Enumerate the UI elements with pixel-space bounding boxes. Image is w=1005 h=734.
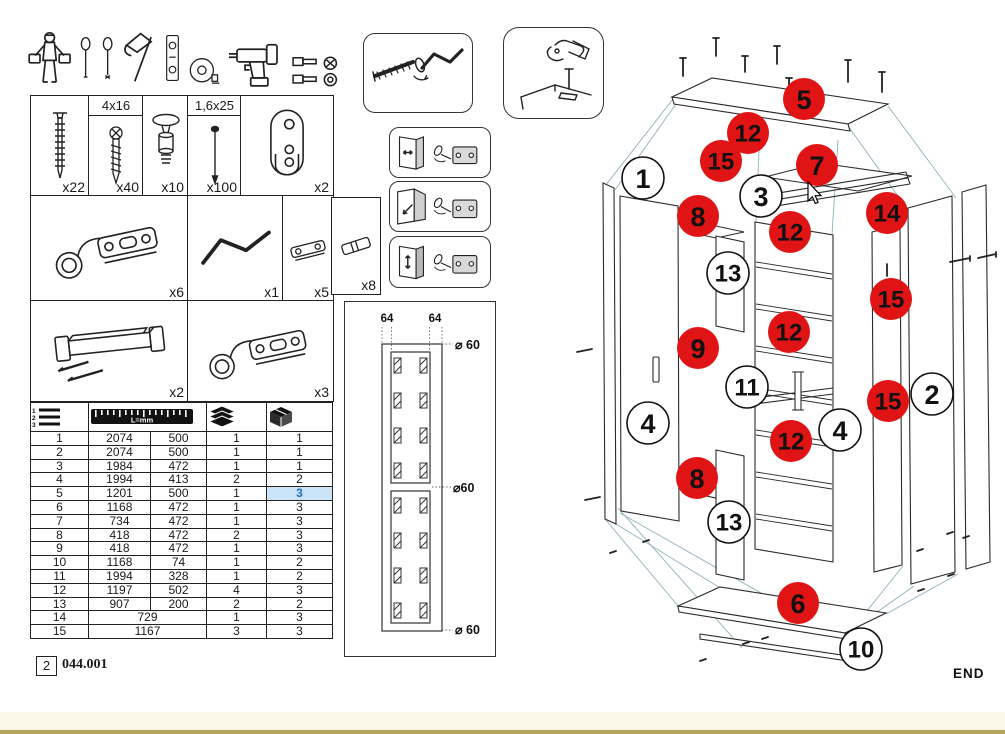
svg-text:9: 9 xyxy=(690,334,705,364)
dim-64-left: 64 xyxy=(381,313,394,325)
svg-text:11: 11 xyxy=(734,375,759,402)
parts-table-cell: 1 xyxy=(31,432,89,446)
svg-text:15: 15 xyxy=(875,389,902,416)
parts-table-cell: 472 xyxy=(151,500,207,514)
length-ruler-icon: L=mm xyxy=(89,403,207,432)
parts-table-cell: 328 xyxy=(151,569,207,583)
callout-12-red: 12 xyxy=(768,311,810,353)
parts-table-row: 3198447211 xyxy=(31,459,333,473)
hinge-icon xyxy=(31,196,188,301)
callout-13-white: 13 xyxy=(707,252,749,294)
svg-text:4: 4 xyxy=(832,416,847,446)
exploded-diagram-svg: 51215714812151291512861313114421310 END xyxy=(575,10,1005,700)
parts-table-cell: 500 xyxy=(151,432,207,446)
parts-table-cell: 3 xyxy=(267,542,333,556)
svg-text:15: 15 xyxy=(708,149,735,176)
parts-table-row: 1390720022 xyxy=(31,597,333,611)
callout-8-red: 8 xyxy=(676,457,718,499)
parts-table-cell: 1 xyxy=(207,500,267,514)
parts-table-cell: 74 xyxy=(151,556,207,570)
parts-table-cell: 5 xyxy=(31,487,89,501)
hardware-cell-hinge2: x3 xyxy=(187,300,334,402)
parts-table-cell: 1197 xyxy=(89,583,151,597)
parts-table-cell: 4 xyxy=(207,583,267,597)
doc-code: 044.001 xyxy=(62,657,108,673)
parts-table-cell: 12 xyxy=(31,583,89,597)
parts-table-cell: 472 xyxy=(151,528,207,542)
parts-table-cell: 418 xyxy=(89,542,151,556)
svg-text:3: 3 xyxy=(32,422,36,428)
drill-holes xyxy=(394,358,427,618)
drill-hole xyxy=(394,358,401,373)
parts-table-cell: 8 xyxy=(31,528,89,542)
parts-table-cell: 1168 xyxy=(89,556,151,570)
svg-text:12: 12 xyxy=(776,320,803,347)
drill-template-box: 64 64 ⌀ 60 ⌀60 ⌀ 60 xyxy=(344,301,496,657)
parts-table-cell: 1994 xyxy=(89,569,151,583)
parts-table-cell: 2 xyxy=(267,597,333,611)
parts-table-cell: 3 xyxy=(267,583,333,597)
callout-8-red: 8 xyxy=(677,195,719,237)
parts-table-cell: 6 xyxy=(31,500,89,514)
svg-text:6: 6 xyxy=(790,589,805,619)
parts-table-cell: 2 xyxy=(31,445,89,459)
callout-15-red: 15 xyxy=(867,380,909,422)
drill-hole xyxy=(394,498,401,513)
parts-table-cell: 472 xyxy=(151,542,207,556)
callout-9-red: 9 xyxy=(677,327,719,369)
qty-label: x40 xyxy=(116,179,139,195)
parts-table-row: 1207450011 xyxy=(31,432,333,446)
callout-4-white: 4 xyxy=(819,409,861,451)
tools-row xyxy=(28,12,340,94)
dia-60-mid: ⌀60 xyxy=(453,481,474,495)
crank-screw-instruction-box xyxy=(363,33,473,113)
callout-10-white: 10 xyxy=(840,628,882,670)
parts-table-cell: 472 xyxy=(151,514,207,528)
parts-table-cell: 500 xyxy=(151,487,207,501)
door-adjust-depth-icon xyxy=(394,186,486,227)
parts-table-row: 1011687412 xyxy=(31,556,333,570)
svg-text:2: 2 xyxy=(924,380,939,410)
callout-3-white: 3 xyxy=(740,175,782,217)
parts-table-cell: 3 xyxy=(267,528,333,542)
drill-hole xyxy=(420,358,427,373)
callout-1-white: 1 xyxy=(622,157,664,199)
svg-text:L=mm: L=mm xyxy=(131,416,154,425)
parts-table-body: 1207450011220745001131984472114199441322… xyxy=(31,432,333,639)
parts-table-cell: 500 xyxy=(151,445,207,459)
parts-table-cell: 1994 xyxy=(89,473,151,487)
parts-table-cell: 9 xyxy=(31,542,89,556)
parts-table-cell: 502 xyxy=(151,583,207,597)
qty-label: x100 xyxy=(207,179,237,195)
callout-4-white: 4 xyxy=(627,402,669,444)
callout-11-white: 11 xyxy=(726,366,768,408)
drill-hole xyxy=(394,428,401,443)
parts-table-cell: 1 xyxy=(267,459,333,473)
svg-text:8: 8 xyxy=(689,464,704,494)
drill-hole xyxy=(420,533,427,548)
hammer-icon xyxy=(122,22,157,94)
parts-table-cell: 7 xyxy=(31,514,89,528)
drill-hole xyxy=(394,568,401,583)
qty-label: x5 xyxy=(314,284,329,300)
parts-table-cell: 200 xyxy=(151,597,207,611)
parts-table-row: 2207450011 xyxy=(31,445,333,459)
parts-table-cell: 3 xyxy=(267,487,333,501)
parts-table-cell: 2074 xyxy=(89,445,151,459)
page-number-box: 2 xyxy=(36,656,57,676)
flat-screwdriver-icon xyxy=(79,24,92,94)
parts-table-cell: 3 xyxy=(31,459,89,473)
parts-table-cell: 1 xyxy=(207,514,267,528)
callout-7-red: 7 xyxy=(796,144,838,186)
callout-12-red: 12 xyxy=(770,420,812,462)
package-number-icon xyxy=(267,403,333,432)
parts-table-cell: 2 xyxy=(207,597,267,611)
parts-table-cell: 1 xyxy=(207,459,267,473)
dia-60-bottom: ⌀ 60 xyxy=(455,623,480,637)
qty-label: x2 xyxy=(314,179,329,195)
parts-table-cell: 10 xyxy=(31,556,89,570)
parts-table-cell: 1 xyxy=(207,569,267,583)
crank-screw-icon xyxy=(370,42,466,104)
callout-5-red: 5 xyxy=(783,78,825,120)
svg-text:8: 8 xyxy=(690,202,705,232)
svg-text:14: 14 xyxy=(874,201,901,228)
parts-table-cell: 472 xyxy=(151,459,207,473)
svg-text:4: 4 xyxy=(640,409,655,439)
hardware-cell-wood-screw: 4x16 x40 xyxy=(88,95,144,197)
parts-table-row: 841847223 xyxy=(31,528,333,542)
hardware-cell-rail-bracket: x2 xyxy=(240,95,334,197)
qty-label: x3 xyxy=(314,384,329,400)
handle-icon xyxy=(31,301,188,401)
qty-label: x8 xyxy=(361,277,376,293)
drill-hole xyxy=(394,463,401,478)
parts-table-cell: 2074 xyxy=(89,432,151,446)
drill-hole xyxy=(420,603,427,618)
parts-table-row: 5120150013 xyxy=(31,487,333,501)
parts-table-cell: 2 xyxy=(207,473,267,487)
parts-table-cell: 729 xyxy=(89,611,207,625)
end-label: END xyxy=(953,666,985,681)
svg-text:3: 3 xyxy=(753,182,768,212)
hardware-cell-plate: x5 xyxy=(282,195,334,302)
svg-text:12: 12 xyxy=(778,429,805,456)
parts-table-cell: 1 xyxy=(207,432,267,446)
parts-table-cell: 1 xyxy=(207,611,267,625)
callout-12-red: 12 xyxy=(769,211,811,253)
drill-hole xyxy=(420,463,427,478)
drill-template-diagram: 64 64 ⌀ 60 ⌀60 ⌀ 60 xyxy=(345,302,495,656)
qty-label: x6 xyxy=(169,284,184,300)
parts-table-cell: 13 xyxy=(31,597,89,611)
parts-table-cell: 907 xyxy=(89,597,151,611)
parts-table-header: 123 L=mm xyxy=(31,403,333,432)
parts-table-row: 1472913 xyxy=(31,611,333,625)
assembler-person-icon xyxy=(28,22,71,94)
parts-table-cell: 1 xyxy=(207,556,267,570)
size-label: 1,6x25 xyxy=(188,96,241,116)
parts-table: 123 L=mm 1207450011220745001131984472114… xyxy=(30,402,333,639)
qty-label: x1 xyxy=(264,284,279,300)
parts-table-cell: 1168 xyxy=(89,500,151,514)
svg-text:12: 12 xyxy=(735,121,762,148)
parts-table-cell: 734 xyxy=(89,514,151,528)
hardware-cell-cam-stud: x10 xyxy=(142,95,189,197)
hardware-cell-nail: 1,6x25 x100 xyxy=(187,95,242,197)
parts-table-row: 773447213 xyxy=(31,514,333,528)
parts-table-row: 6116847213 xyxy=(31,500,333,514)
svg-text:1: 1 xyxy=(635,164,650,194)
hardware-cell-handle: x2 xyxy=(30,300,189,402)
parts-table-cell: 2 xyxy=(207,528,267,542)
parts-table-cell: 3 xyxy=(267,611,333,625)
parts-table-cell: 2 xyxy=(267,473,333,487)
qty-label: x10 xyxy=(161,179,184,195)
parts-table-cell: 1201 xyxy=(89,487,151,501)
qty-label: x22 xyxy=(62,179,85,195)
callout-14-red: 14 xyxy=(866,192,908,234)
parts-table-cell: 1984 xyxy=(89,459,151,473)
hinge-adjust-horizontal-box xyxy=(389,127,491,178)
hinge-adjust-vertical-box xyxy=(389,236,491,288)
parts-table-row: 4199441322 xyxy=(31,473,333,487)
parts-table-cell: 413 xyxy=(151,473,207,487)
parts-table-cell: 1 xyxy=(267,432,333,446)
parts-table-cell: 1 xyxy=(207,445,267,459)
stack-count-icon xyxy=(207,403,267,432)
callout-15-red: 15 xyxy=(700,140,742,182)
drill-hole xyxy=(420,428,427,443)
hinge-icon xyxy=(188,301,333,401)
drill-hole xyxy=(420,568,427,583)
position-list-icon: 123 xyxy=(31,403,89,432)
parts-table-row: 15116733 xyxy=(31,625,333,639)
drill-hole xyxy=(394,393,401,408)
tape-measure-icon xyxy=(188,52,221,94)
hinge-adjust-depth-box xyxy=(389,181,491,232)
drill-hole xyxy=(420,498,427,513)
callout-13-white: 13 xyxy=(708,501,750,543)
drill-hole xyxy=(394,533,401,548)
dim-64-right: 64 xyxy=(429,313,442,325)
callout-6-red: 6 xyxy=(777,582,819,624)
parts-table-cell: 1 xyxy=(267,445,333,459)
drill-hole xyxy=(394,603,401,618)
qty-label: x2 xyxy=(169,384,184,400)
parts-table-cell: 1 xyxy=(207,542,267,556)
parts-table-row: 12119750243 xyxy=(31,583,333,597)
parts-table-row: 11199432812 xyxy=(31,569,333,583)
spirit-level-icon xyxy=(165,22,180,94)
bottom-band xyxy=(0,712,1005,730)
bottom-band-line xyxy=(0,730,1005,734)
parts-table-cell: 3 xyxy=(267,514,333,528)
svg-text:13: 13 xyxy=(716,510,743,537)
hardware-cell-hinge: x6 xyxy=(30,195,189,302)
hardware-cell-crank: x1 xyxy=(187,195,284,302)
parts-table-cell: 2 xyxy=(267,556,333,570)
parts-table-cell: 15 xyxy=(31,625,89,639)
door-adjust-vertical-icon xyxy=(394,241,486,283)
svg-text:1: 1 xyxy=(32,408,36,415)
svg-text:10: 10 xyxy=(848,637,875,664)
svg-text:2: 2 xyxy=(32,415,36,422)
hardware-cell-dowel: x8 xyxy=(331,197,381,295)
parts-table-cell: 14 xyxy=(31,611,89,625)
svg-text:12: 12 xyxy=(777,220,804,247)
parts-table-row: 941847213 xyxy=(31,542,333,556)
svg-text:15: 15 xyxy=(878,287,905,314)
parts-table-cell: 3 xyxy=(207,625,267,639)
door-adjust-horizontal-icon xyxy=(394,132,486,173)
svg-text:5: 5 xyxy=(796,85,811,115)
parts-table-cell: 4 xyxy=(31,473,89,487)
drill-hole xyxy=(420,393,427,408)
driver-bits-icon xyxy=(292,50,340,94)
callout-2-white: 2 xyxy=(911,373,953,415)
svg-text:7: 7 xyxy=(809,151,824,181)
size-label: 4x16 xyxy=(89,96,143,116)
parts-table-cell: 1167 xyxy=(89,625,207,639)
parts-table-cell: 3 xyxy=(267,625,333,639)
parts-table-cell: 1 xyxy=(207,487,267,501)
hardware-cell-confirmat: x22 xyxy=(30,95,90,197)
parts-table-cell: 3 xyxy=(267,500,333,514)
phillips-screwdriver-icon xyxy=(101,24,114,94)
dia-60-top: ⌀ 60 xyxy=(455,338,480,352)
callout-15-red: 15 xyxy=(870,278,912,320)
cordless-drill-icon xyxy=(229,32,284,94)
parts-table-cell: 11 xyxy=(31,569,89,583)
svg-text:13: 13 xyxy=(715,261,742,288)
parts-table-cell: 418 xyxy=(89,528,151,542)
parts-table-cell: 2 xyxy=(267,569,333,583)
instruction-page: x22 4x16 x40 x10 1,6x25 x100 xyxy=(0,0,1005,734)
